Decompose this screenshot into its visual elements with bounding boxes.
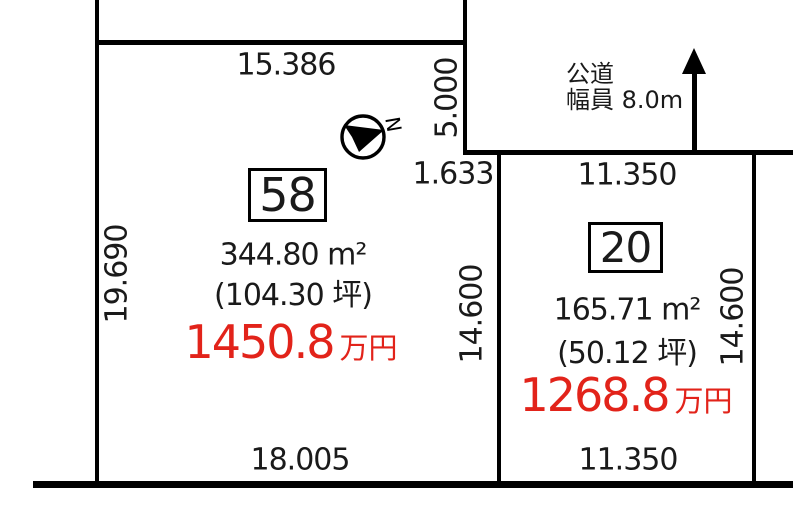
parcel-58-price-value: 1450.8 bbox=[185, 315, 334, 369]
left-boundary-line bbox=[95, 0, 99, 487]
parcel-58-price: 1450.8 万円 bbox=[185, 315, 398, 369]
parcel-20-area-tsubo: (50.12 坪) bbox=[557, 328, 697, 372]
dim-parcel20-bottom: 11.350 bbox=[579, 443, 678, 478]
parcel-58-price-unit: 万円 bbox=[339, 325, 397, 367]
parcel-20-price-unit: 万円 bbox=[674, 378, 732, 420]
top-boundary-line bbox=[95, 40, 467, 45]
parcel-58-number-box: 58 bbox=[248, 168, 327, 222]
bottom-boundary-line bbox=[33, 481, 793, 488]
parcel-20-number-box: 20 bbox=[588, 222, 663, 273]
road-arrow-icon bbox=[682, 48, 706, 74]
dim-parcel58-left: 19.690 bbox=[100, 225, 135, 324]
road-label: 公道 幅員 8.0m bbox=[566, 62, 683, 114]
dim-parcel58-bottom: 18.005 bbox=[251, 443, 350, 478]
parcel-58-number: 58 bbox=[259, 168, 316, 222]
road-arrow-shaft bbox=[692, 70, 697, 154]
parcel-58-area-m2: 344.80 m² bbox=[220, 238, 367, 273]
compass-needle-icon bbox=[344, 125, 384, 152]
dim-parcel20-right: 14.600 bbox=[716, 268, 751, 367]
center-boundary-line bbox=[497, 150, 501, 487]
dim-parcel58-right-offset: 1.633 bbox=[413, 157, 494, 192]
road-edge-line bbox=[463, 150, 793, 155]
parcel-20-price-value: 1268.8 bbox=[520, 368, 669, 422]
parcel-20-price: 1268.8 万円 bbox=[520, 368, 733, 422]
dim-parcel20-top: 11.350 bbox=[578, 158, 677, 193]
parcel-58-area-tsubo: (104.30 坪) bbox=[214, 270, 372, 314]
parcel-20-number: 20 bbox=[600, 223, 651, 272]
compass-north-label: N bbox=[380, 115, 406, 134]
compass-icon: N bbox=[334, 108, 406, 168]
dim-parcel58-right-upper: 5.000 bbox=[430, 58, 465, 139]
land-plot-diagram: 公道 幅員 8.0m N 58 344.80 m² (104.30 坪) 145… bbox=[0, 0, 793, 510]
parcel-20-area-m2: 165.71 m² bbox=[554, 293, 701, 328]
right-boundary-line bbox=[752, 150, 756, 487]
road-label-line2: 幅員 8.0m bbox=[566, 88, 683, 114]
dim-parcel58-top: 15.386 bbox=[237, 48, 336, 83]
road-label-line1: 公道 bbox=[566, 62, 683, 88]
dim-parcel58-right-lower: 14.600 bbox=[455, 265, 490, 364]
